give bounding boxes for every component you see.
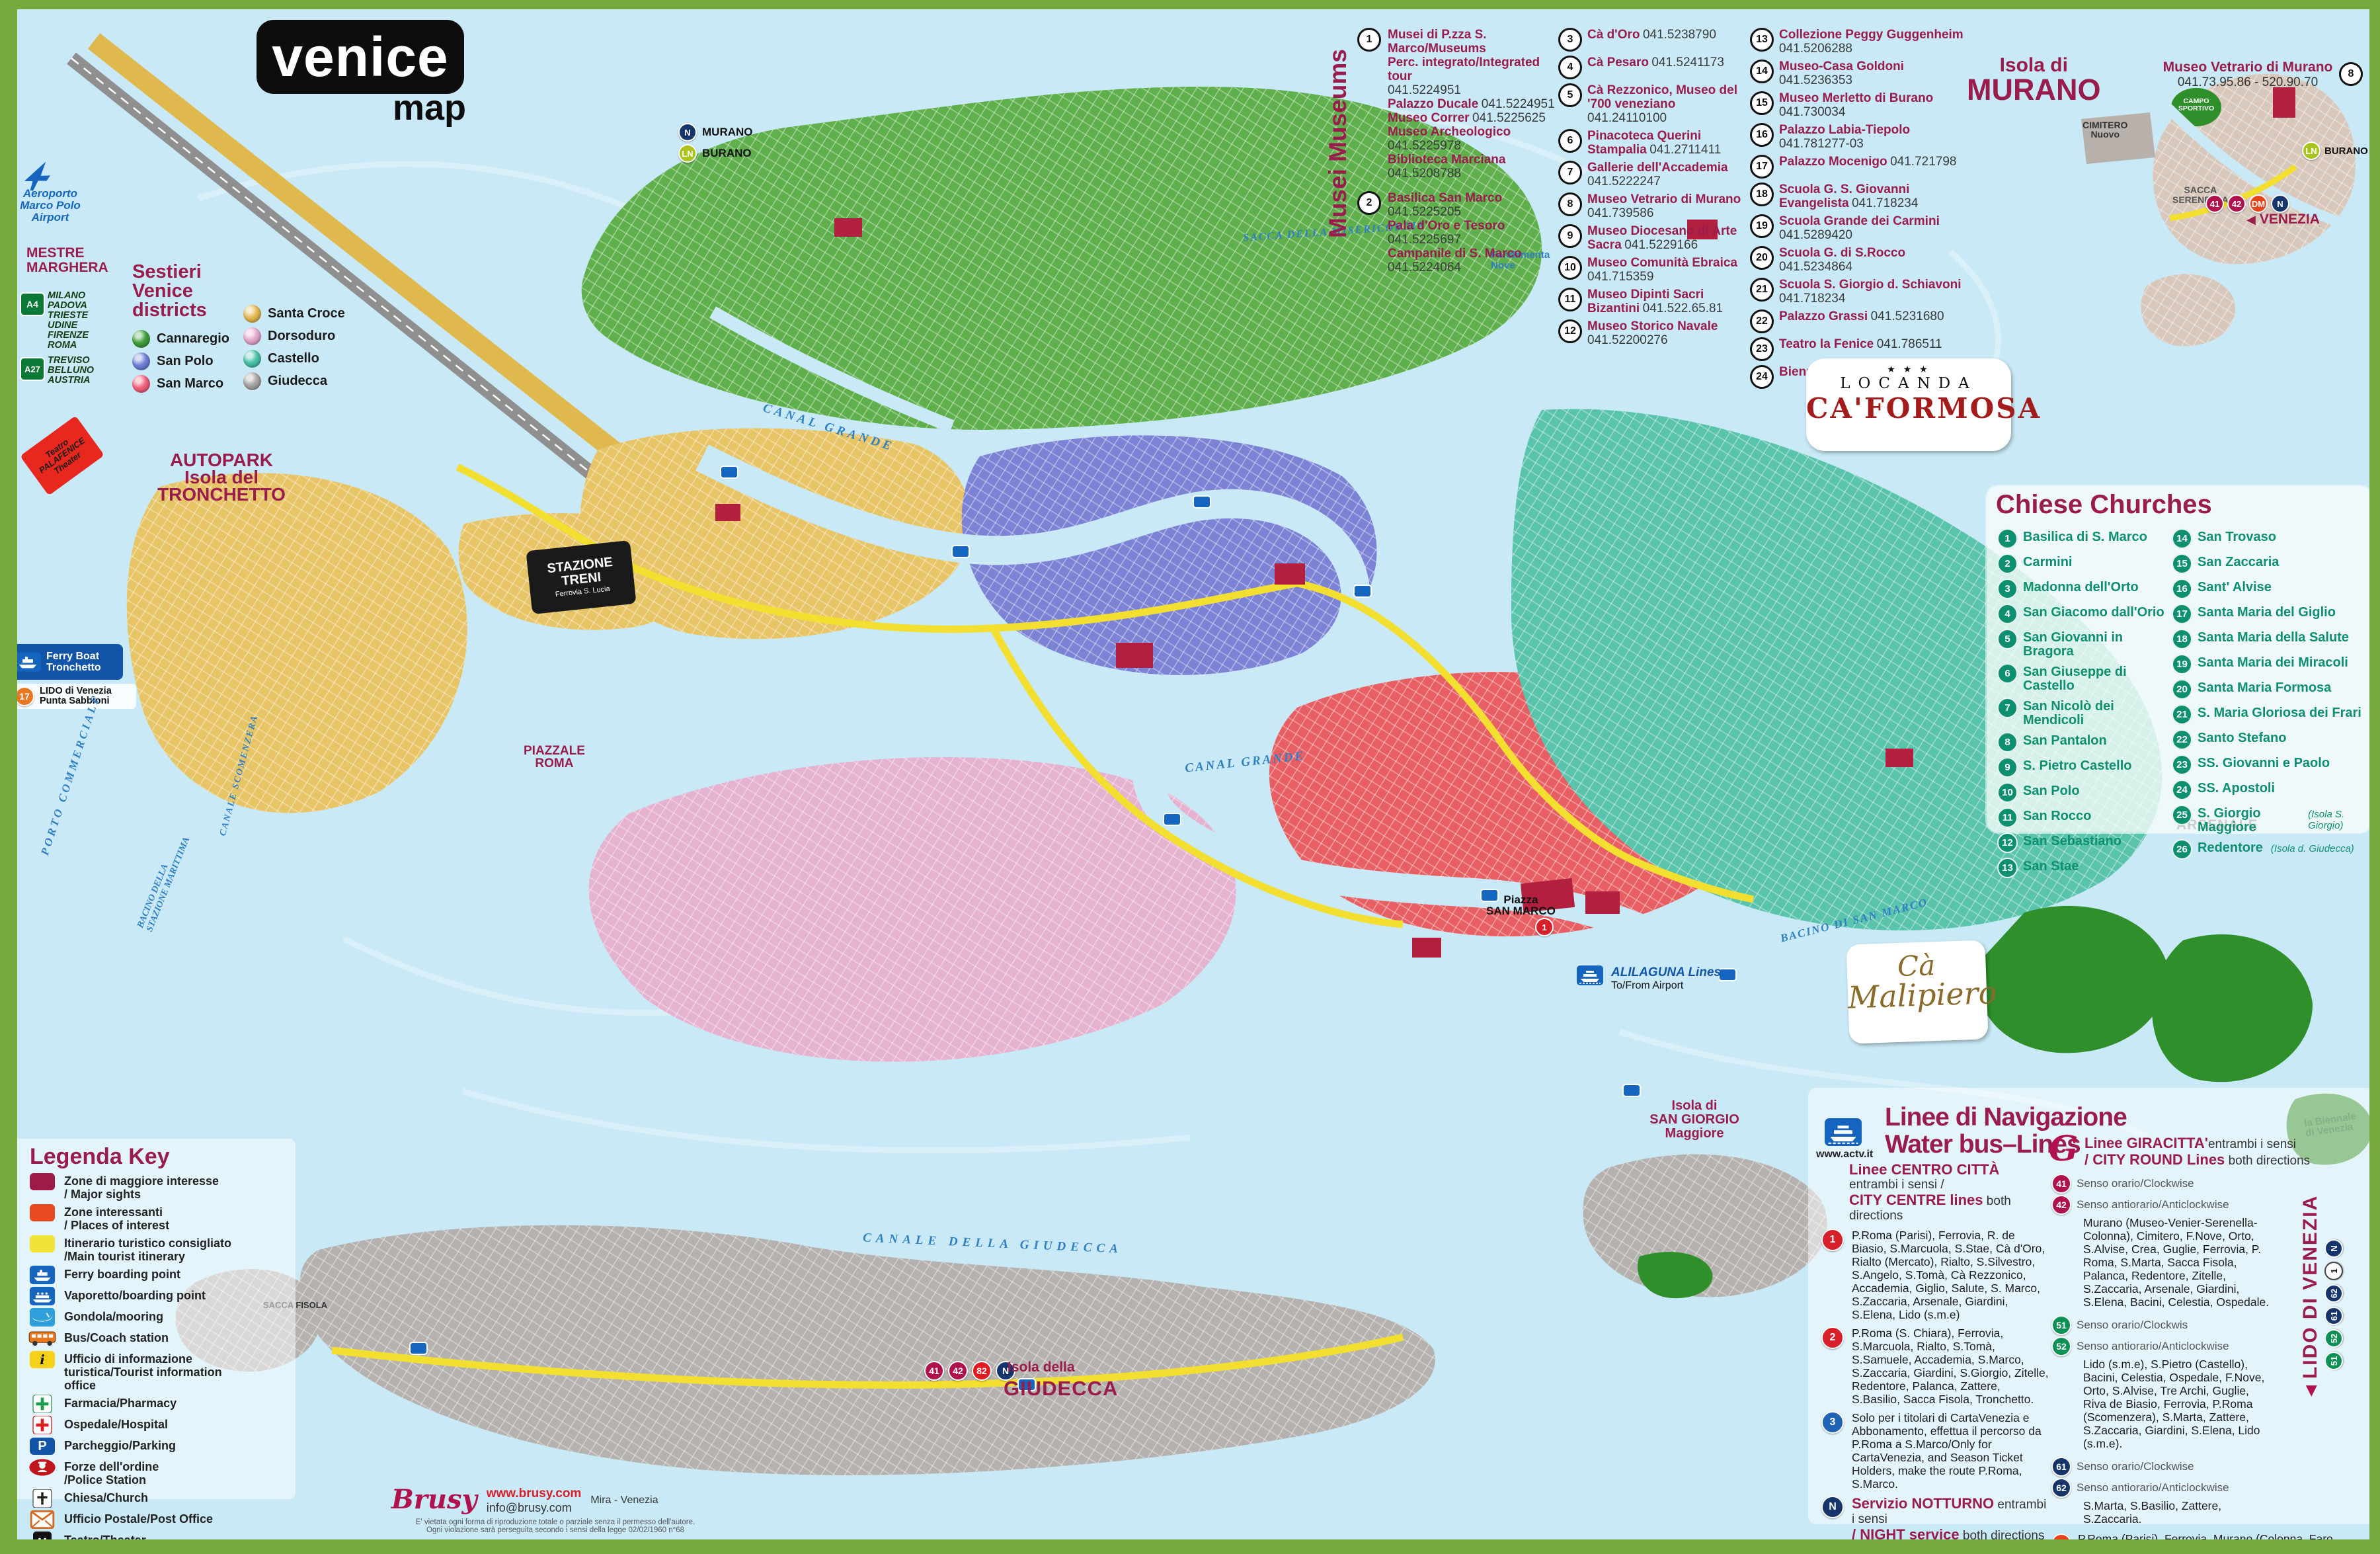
murano-museum-phone: 041.73.95.86 - 520.90.70 — [2162, 75, 2334, 90]
bus-line-entry: 2 P.Roma (S. Chiara), Ferrovia, S.Marcuo… — [1821, 1327, 2049, 1406]
district-color-dot — [132, 330, 150, 348]
map-border-bottom — [0, 1539, 2380, 1554]
museum-number-badge: 11 — [1558, 288, 1582, 311]
museum-item: 9 Museo Diocesano di Arte Sacra 041.5229… — [1558, 224, 1749, 252]
museum-phone: 041.5225697 — [1388, 233, 1461, 247]
museum-item: 22 Palazzo Grassi 041.5231680 — [1750, 309, 1975, 333]
museum-item: 5 Cà Rezzonico, Museo del '700 veneziano… — [1558, 83, 1749, 125]
church-number-badge: 7 — [1997, 698, 2018, 718]
district-color-dot — [132, 375, 150, 393]
city-centre-heading: Linee CENTRO CITTÀ entrambi i sensi / CI… — [1849, 1162, 2049, 1223]
church-item: 22 Santo Stefano — [2172, 729, 2369, 750]
museum-phone: 041.522.65.81 — [1643, 302, 1724, 315]
legend-item-label: Ufficio Postale/Post Office — [64, 1510, 213, 1526]
museum-number-badge: 16 — [1750, 123, 1774, 147]
museum-item: 8 Museo Vetrario di Murano 041.739586 — [1558, 192, 1749, 220]
museum-phone: 041.718234 — [1852, 196, 1918, 210]
legend-item: Vaporetto/boarding point — [28, 1287, 296, 1305]
ferry-boat-label: Ferry Boat Tronchetto — [46, 651, 101, 673]
church-item: 2 Carmini — [1997, 553, 2168, 574]
museum-item: 19 Scuola Grande dei Carmini 041.5289420 — [1750, 214, 1975, 242]
line-ln-badge: LN — [678, 144, 697, 163]
district-legend-item: Giudecca — [243, 372, 345, 390]
museum-name: Museo-Casa Goldoni — [1779, 60, 1904, 73]
district-color-dot — [243, 305, 261, 323]
legend-item: Zone di maggiore interesse / Major sight… — [28, 1172, 296, 1201]
credits-website: www.brusy.com — [487, 1487, 582, 1501]
brusy-logo: Brusy — [391, 1487, 477, 1513]
line-badge: 41 — [2205, 194, 2224, 213]
stazione-treni-sign: STAZIONE TRENI Ferrovia S. Lucia — [526, 540, 636, 614]
legal-line-2: Ogni violazione sarà perseguita secondo … — [370, 1526, 740, 1534]
legend-item-label: Ferry boarding point — [64, 1266, 180, 1281]
museum-name: Cà Pesaro — [1587, 56, 1649, 69]
district-legend-item: Dorsoduro — [243, 327, 345, 345]
pharmacy-icon — [28, 1395, 56, 1413]
murano-direction-label: MURANO — [702, 126, 753, 139]
museum-item: 20 Scuola G. di S.Rocco 041.5234864 — [1750, 246, 1975, 274]
museum-number-badge: 20 — [1750, 246, 1774, 270]
direction-label: Senso antiorario/Anticlockwise — [2077, 1340, 2229, 1353]
museum-name: Museo Vetrario di Murano — [1587, 192, 1741, 206]
legend-item: i Ufficio di informazione turistica/Tour… — [28, 1350, 296, 1392]
map-border-left — [0, 0, 17, 1554]
museum-number-badge: 5 — [1558, 83, 1582, 107]
heading-strong: Linee GIRACITTA' — [2084, 1135, 2208, 1151]
museum-item: 13 Collezione Peggy Guggenheim 041.52062… — [1750, 28, 1975, 56]
logo-text: venice — [272, 25, 449, 89]
church-name: S. Maria Gloriosa dei Frari — [2198, 704, 2361, 720]
legend-item: Bus/Coach station — [28, 1329, 296, 1348]
church-name: SS. Apostoli — [2198, 780, 2275, 796]
line-1-marker-badge: 1 — [1535, 918, 1554, 936]
museum-name: Museo Storico Navale — [1587, 319, 1718, 333]
church-name: San Sebastiano — [2023, 833, 2122, 848]
church-number-badge: 13 — [1997, 858, 2018, 878]
churches-panel: Chiese Churches 1 Basilica di S. Marco 2… — [1987, 486, 2371, 833]
church-number-badge: 12 — [1997, 833, 2018, 853]
church-note: (Isola d. Giudecca) — [2271, 839, 2354, 854]
museum-item: 17 Palazzo Mocenigo 041.721798 — [1750, 155, 1975, 179]
museum-phone: 041.739586 — [1587, 206, 1653, 220]
line-badge: 2 — [1821, 1327, 1844, 1349]
museum-phone: 041.5224064 — [1388, 261, 1461, 274]
museum-phone: 041.5224951 — [1482, 97, 1555, 111]
locanda-ca-formosa-ad: ★ ★ ★ LOCANDA CA'FORMOSA — [1806, 358, 2011, 451]
museum-item: 18 Scuola G. S. Giovanni Evangelista 041… — [1750, 183, 1975, 210]
church-name: S. Pietro Castello — [2023, 757, 2132, 773]
museum-name: Collezione Peggy Guggenheim — [1779, 28, 1963, 42]
arrow-left-icon: ◀ — [2246, 213, 2256, 227]
church-number-badge: 18 — [2172, 629, 2192, 649]
church-number-badge: 6 — [1997, 663, 2018, 684]
museum-name: Museo Archeologico — [1388, 125, 1511, 139]
museum-number-badge: 18 — [1750, 183, 1774, 206]
museum-item: 21 Scuola S. Giorgio d. Schiavoni 041.71… — [1750, 278, 1975, 306]
church-name: Santa Maria Formosa — [2198, 679, 2331, 695]
museum-phone: 041.5208788 — [1388, 167, 1461, 181]
church-number-badge: 21 — [2172, 704, 2192, 725]
heading-line: Linee GIRACITTA'entrambi i sensi — [2084, 1135, 2369, 1152]
cimitero-nuovo-label: CIMITERO Nuovo — [2082, 120, 2127, 139]
alilaguna-sublabel: To/From Airport — [1611, 980, 1721, 992]
direction-label: Senso orario/Clockwis — [2077, 1319, 2188, 1332]
church-item: 4 San Giacomo dall'Orio — [1997, 604, 2168, 624]
museum-name: Palazzo Ducale — [1388, 97, 1478, 111]
museum-phone: 041.5231680 — [1871, 309, 1944, 323]
heading-normal: both directions — [2225, 1154, 2310, 1168]
museum-phone: 041.5241173 — [1651, 56, 1724, 69]
line-badge: DM — [2249, 194, 2268, 213]
credits-legal: E' vietata ogni forma di riproduzione to… — [370, 1518, 740, 1534]
museum-name: Teatro la Fenice — [1779, 337, 1874, 351]
museum-number-badge: 7 — [1558, 161, 1582, 184]
church-name: Redentore — [2198, 839, 2263, 855]
district-legend-item: Cannaregio — [132, 330, 229, 348]
piazza-san-marco-label: Piazza SAN MARCO — [1486, 894, 1556, 917]
itinerary-icon — [28, 1235, 56, 1253]
malipiero-label-2: Malipiero — [1847, 977, 1987, 1013]
museum-name: Cà Rezzonico, Museo del '700 veneziano — [1587, 83, 1737, 111]
museum-name: Gallerie dell'Accademia — [1587, 161, 1728, 175]
campo-sportivo-label: CAMPO SPORTIVO — [2176, 98, 2217, 112]
church-item: 1 Basilica di S. Marco — [1997, 528, 2168, 549]
ferry-destination-sign: 17 LIDO di Venezia Punta Sabbioni — [11, 684, 136, 709]
mestre-label: MESTRE MARGHERA — [26, 246, 108, 275]
airport-label: Aeroporto Marco Polo Airport — [4, 188, 97, 224]
church-number-badge: 24 — [2172, 780, 2192, 800]
museum-item: 6 Pinacoteca Querini Stampalia 041.27114… — [1558, 129, 1749, 157]
heading-line: / CITY ROUND Lines both directions — [2084, 1152, 2369, 1168]
church-name: SS. Giovanni e Paolo — [2198, 755, 2330, 770]
museum-number-badge: 9 — [1558, 224, 1582, 248]
museum-phone: 041.5289420 — [1779, 228, 1852, 242]
line-ln-badge: LN — [2302, 142, 2320, 160]
heading-normal: entrambi i sensi — [2208, 1137, 2296, 1151]
parking-icon: P — [28, 1437, 56, 1455]
church-name: San Giuseppe di Castello — [2023, 663, 2168, 693]
credits-city: Mira - Venezia — [590, 1487, 658, 1506]
church-number-badge: 19 — [2172, 654, 2192, 675]
museum-phone: 041.781277-03 — [1779, 137, 1864, 151]
museum-phone: 041.5229166 — [1624, 238, 1698, 252]
church-item: 14 San Trovaso — [2172, 528, 2369, 549]
murano-museum-name: Museo Vetrario di Murano — [2162, 60, 2334, 75]
venezia-direction: ◀ VENEZIA — [2246, 212, 2320, 227]
legal-line-1: E' vietata ogni forma di riproduzione to… — [370, 1518, 740, 1526]
church-item: 12 San Sebastiano — [1997, 833, 2168, 853]
church-number-badge: 9 — [1997, 757, 2018, 778]
line-stops-text: Solo per i titolari di CartaVenezia e Ab… — [1852, 1411, 2049, 1491]
church-name: San Pantalon — [2023, 732, 2107, 748]
heading-line: CITY CENTRE lines both directions — [1849, 1192, 2049, 1223]
city-centre-lines-section: Linee CENTRO CITTÀ entrambi i sensi / CI… — [1821, 1162, 2049, 1554]
church-item: 10 San Polo — [1997, 782, 2168, 803]
district-color-dot — [243, 350, 261, 368]
ferry-boat-sign: Ferry Boat Tronchetto — [11, 644, 123, 680]
legend-title: Legenda Key — [30, 1144, 296, 1170]
church-item: 3 Madonna dell'Orto — [1997, 579, 2168, 599]
museum-phone: 041.730034 — [1779, 105, 1845, 119]
line-badge: 41 — [2051, 1174, 2071, 1194]
church-item: 19 Santa Maria dei Miracoli — [2172, 654, 2369, 675]
line-badge: 61 — [2051, 1457, 2071, 1477]
legend-item-label: Farmacia/Pharmacy — [64, 1395, 177, 1410]
museum-number-badge: 21 — [1750, 278, 1774, 302]
museum-row: Basilica San Marco 041.5225205 — [1388, 191, 1557, 219]
heading-line: Servizio NOTTURNO entrambi i sensi — [1852, 1496, 2049, 1527]
church-item: 16 Sant' Alvise — [2172, 579, 2369, 599]
museum-name: Cà d'Oro — [1587, 28, 1640, 42]
legend-item: Chiesa/Church — [28, 1489, 296, 1508]
logo-subtext: map — [393, 87, 466, 128]
line-stops-text: P.Roma (Parisi), Ferrovia, R. de Biasio,… — [1852, 1229, 2049, 1321]
line-n-badge: N — [678, 123, 697, 142]
line-direction-row: 61 Senso orario/Clockwise — [2051, 1457, 2369, 1477]
venezia-label: VENEZIA — [2260, 212, 2320, 227]
piazzale-roma-label: PIAZZALE ROMA — [524, 745, 585, 770]
museum-phone: 041.786511 — [1877, 337, 1942, 351]
church-number-badge: 23 — [2172, 755, 2192, 775]
bus-icon — [28, 1329, 56, 1348]
line-badge: 61 — [2324, 1307, 2343, 1325]
burano-direction-label: BURANO — [702, 147, 752, 160]
district-legend-item: Castello — [243, 350, 345, 368]
locanda-label: LOCANDA — [1806, 375, 2011, 392]
zone-interest-icon — [28, 1204, 56, 1222]
museum-number-badge: 19 — [1750, 214, 1774, 238]
legend-item-label: Zone di maggiore interesse / Major sight… — [64, 1172, 219, 1201]
legend-item-label: Parcheggio/Parking — [64, 1437, 176, 1452]
line-stops-text: Lido (s.m.e), S.Pietro (Castello), Bacin… — [2083, 1358, 2275, 1450]
line-badge: 1 — [1821, 1229, 1844, 1251]
night-service-heading: N Servizio NOTTURNO entrambi i sensi / N… — [1821, 1496, 2049, 1543]
night-line-badge: N — [1821, 1496, 1844, 1518]
church-number-badge: 14 — [2172, 528, 2192, 549]
line-badge: N — [2324, 1239, 2343, 1258]
museum-phone: 041.721798 — [1890, 155, 1956, 169]
museum-group-1: 1 Musei di P.zza S. Marco/Museums Perc. … — [1357, 28, 1557, 181]
church-name: Santa Maria dei Miracoli — [2198, 654, 2348, 670]
museum-number-badge: 2 — [1357, 191, 1381, 215]
church-name: San Polo — [2023, 782, 2080, 798]
san-giorgio-label: Isola di SAN GIORGIO Maggiore — [1645, 1099, 1744, 1141]
museum-phone: 041.5222247 — [1587, 175, 1661, 188]
line-stops-text: S.Marta, S.Basilio, Zattere, S.Zaccaria. — [2083, 1499, 2275, 1526]
church-item: 23 SS. Giovanni e Paolo — [2172, 755, 2369, 775]
church-name: San Zaccaria — [2198, 553, 2279, 569]
lido-line-badges: 515261621N — [2324, 1195, 2343, 1370]
museum-number-badge: 17 — [1750, 155, 1774, 179]
church-number-badge: 10 — [1997, 782, 2018, 803]
ca-malipiero-ad: Cà Malipiero — [1846, 940, 1988, 1043]
alilaguna-label: ALILAGUNA Lines — [1611, 965, 1721, 980]
legend-key-panel: Legenda Key Zone di maggiore interesse /… — [10, 1139, 296, 1499]
autopark-tronchetto-label: AUTOPARK Isola del TRONCHETTO — [132, 452, 311, 503]
church-item: 20 Santa Maria Formosa — [2172, 679, 2369, 700]
line-badge: 62 — [2324, 1284, 2343, 1303]
museum-phone: 041.52200276 — [1587, 333, 1668, 347]
museum-item: 11 Museo Dipinti Sacri Bizantini 041.522… — [1558, 288, 1749, 315]
legend-item-label: Zone interessanti / Places of interest — [64, 1204, 169, 1232]
line-direction-row: 62 Senso antiorario/Anticlockwise — [2051, 1478, 2369, 1498]
district-label: Giudecca — [268, 374, 327, 389]
museum-row: Campanile di S. Marco 041.5224064 — [1388, 247, 1557, 274]
burano-direction: LN BURANO — [678, 144, 752, 163]
museum-number-badge: 1 — [1357, 28, 1381, 52]
giudecca-label-line1: Isola della — [1008, 1360, 1075, 1375]
murano-direction: N MURANO — [678, 123, 753, 142]
line-badge: 42 — [2051, 1195, 2071, 1215]
heading-strong: CITY CENTRE lines — [1849, 1192, 1983, 1208]
museum-name: Museo Merletto di Burano — [1779, 91, 1933, 105]
direction-label: Senso orario/Clockwise — [2077, 1460, 2194, 1473]
credits-email: info@brusy.com — [487, 1501, 582, 1515]
museum-item: 15 Museo Merletto di Burano 041.730034 — [1750, 91, 1975, 119]
church-item: 15 San Zaccaria — [2172, 553, 2369, 574]
church-name: S. Giorgio Maggiore — [2198, 805, 2300, 835]
hospital-icon — [28, 1416, 56, 1434]
church-item: 6 San Giuseppe di Castello — [1997, 663, 2168, 693]
legend-item-label: Bus/Coach station — [64, 1329, 169, 1344]
museum-number-badge: 6 — [1558, 129, 1582, 153]
district-label: San Polo — [157, 354, 214, 369]
map-border-top — [0, 0, 2380, 9]
line-badge: 1 — [2324, 1262, 2343, 1280]
credits: Brusy www.brusy.com info@brusy.com Mira … — [391, 1487, 658, 1515]
line-stops-text: P.Roma (S. Chiara), Ferrovia, S.Marcuola… — [1852, 1327, 2049, 1406]
church-item: 25 S. Giorgio Maggiore (Isola S. Giorgio… — [2172, 805, 2369, 835]
a4-cities-label: MILANO PADOVA TRIESTE UDINE FIRENZE ROMA — [48, 291, 89, 350]
museum-number-badge: 14 — [1750, 60, 1774, 83]
museum-name: Biblioteca Marciana — [1388, 153, 1505, 167]
district-label: San Marco — [157, 376, 223, 391]
churches-title: Chiese Churches — [1996, 490, 2212, 520]
direction-label: Senso orario/Clockwise — [2077, 1177, 2194, 1190]
church-name: Sant' Alvise — [2198, 579, 2272, 594]
line-badge: 41 — [924, 1361, 944, 1381]
museum-name: Basilica San Marco — [1388, 191, 1502, 205]
stars-icon: ★ ★ ★ — [1806, 364, 2011, 375]
church-number-badge: 25 — [2172, 805, 2192, 825]
church-number-badge: 5 — [1997, 629, 2018, 649]
bus-line-entry: 3 Solo per i titolari di CartaVenezia e … — [1821, 1411, 2049, 1491]
legend-item: Ferry boarding point — [28, 1266, 296, 1284]
legend-item: Zone interessanti / Places of interest — [28, 1204, 296, 1232]
line-stops-text: Murano (Museo-Venier-Serenella-Colonna),… — [2083, 1216, 2275, 1309]
alilaguna-sign: ALILAGUNA Lines To/From Airport — [1577, 965, 1721, 992]
church-number-badge: 22 — [2172, 729, 2192, 750]
church-number-badge: 4 — [1997, 604, 2018, 624]
legend-item: Itinerario turistico consigliato /Main t… — [28, 1235, 296, 1263]
museum-number-badge: 22 — [1750, 309, 1774, 333]
giudecca-label-line2: GIUDECCA — [1004, 1377, 1118, 1401]
museum-name: Palazzo Labia-Tiepolo — [1779, 123, 1910, 137]
museum-row: Pala d'Oro e Tesoro 041.5225697 — [1388, 219, 1557, 247]
museum-name: Perc. integrato/Integrated tour — [1388, 56, 1557, 83]
church-name: San Rocco — [2023, 807, 2091, 823]
church-item: 13 San Stae — [1997, 858, 2168, 878]
district-label: Dorsoduro — [268, 329, 335, 344]
museum-item: 23 Teatro la Fenice 041.786511 — [1750, 337, 1975, 361]
line-direction-row: 41 Senso orario/Clockwise — [2051, 1174, 2369, 1194]
museum-name: Scuola Grande dei Carmini — [1779, 214, 1940, 228]
museum-name: Palazzo Mocenigo — [1779, 155, 1887, 169]
museum-number-badge: 23 — [1750, 337, 1774, 361]
lido-di-venezia-strip: ◀ LIDO DI VENEZIA 515261621N — [2299, 1195, 2343, 1397]
police-icon — [28, 1458, 56, 1477]
murano-inset-title: Isola di MURANO — [1967, 54, 2100, 103]
gondola-icon — [28, 1308, 56, 1327]
water-bus-lines-panel: www.actv.it Linee di Navigazione Water b… — [1808, 1088, 2374, 1524]
museum-item: 10 Museo Comunità Ebraica 041.715359 — [1558, 256, 1749, 284]
district-legend-item: San Polo — [132, 352, 229, 370]
church-item: 21 S. Maria Gloriosa dei Frari — [2172, 704, 2369, 725]
museum-item: 16 Palazzo Labia-Tiepolo 041.781277-03 — [1750, 123, 1975, 151]
museum-phone: 041.5225978 — [1388, 139, 1461, 153]
zone-major-icon — [28, 1172, 56, 1191]
church-name: San Stae — [2023, 858, 2079, 874]
line-badge: 52 — [2324, 1329, 2343, 1348]
museum-phone: 041.5224951 — [1388, 83, 1557, 97]
district-color-dot — [243, 327, 261, 345]
district-label: Santa Croce — [268, 306, 345, 321]
museums-panel: Musei Museums 1 Musei di P.zza S. Marco/… — [1319, 20, 2059, 380]
museum-item: 14 Museo-Casa Goldoni 041.5236353 — [1750, 60, 1975, 87]
church-name: Madonna dell'Orto — [2023, 579, 2139, 594]
museum-number-badge: 13 — [1750, 28, 1774, 52]
heading-strong: / CITY ROUND Lines — [2084, 1151, 2225, 1168]
church-name: Santo Stefano — [2198, 729, 2286, 745]
lido-strip-label: LIDO DI VENEZIA — [2299, 1195, 2322, 1379]
church-item: 7 San Nicolò dei Mendicoli — [1997, 698, 2168, 727]
heading-line: entrambi i sensi / — [1849, 1178, 2049, 1192]
church-icon — [28, 1489, 56, 1508]
district-legend-item: Santa Croce — [243, 305, 345, 323]
church-item: 11 San Rocco — [1997, 807, 2168, 828]
arrow-icon: ◀ — [2302, 1385, 2319, 1397]
museum-phone: 041.5206288 — [1779, 42, 1852, 56]
a4-highway-shield: A4 — [20, 292, 45, 316]
museum-phone: 041.2711411 — [1649, 143, 1721, 157]
ca-formosa-label: CA'FORMOSA — [1806, 392, 2011, 425]
legend-item: Ufficio Postale/Post Office — [28, 1510, 296, 1529]
museum-phone: 041.5225205 — [1388, 205, 1461, 219]
line-badge: 42 — [2227, 194, 2246, 213]
museum-number-badge: 4 — [1558, 56, 1582, 79]
church-number-badge: 16 — [2172, 579, 2192, 599]
church-item: 24 SS. Apostoli — [2172, 780, 2369, 800]
giracitta-glyph: G — [2049, 1129, 2078, 1169]
museum-name: Scuola G. di S.Rocco — [1779, 246, 1905, 260]
venice-map-logo: venice map — [257, 20, 481, 139]
church-number-badge: 1 — [1997, 528, 2018, 549]
legend-item-label: Vaporetto/boarding point — [64, 1287, 206, 1302]
church-name: Santa Maria del Giglio — [2198, 604, 2336, 620]
district-color-dot — [132, 352, 150, 370]
vaporetto-icon — [28, 1287, 56, 1305]
waterbus-title-line1: Linee di Navigazione — [1885, 1104, 2127, 1131]
museum-number-badge: 24 — [1750, 365, 1774, 389]
round-line-group: 61 Senso orario/Clockwise 62 Senso antio… — [2051, 1457, 2369, 1526]
museum-item: 3 Cà d'Oro 041.5238790 — [1558, 28, 1749, 52]
church-name: Santa Maria della Salute — [2198, 629, 2349, 645]
district-label: Castello — [268, 351, 319, 366]
church-item: 17 Santa Maria del Giglio — [2172, 604, 2369, 624]
a27-highway-shield: A27 — [20, 357, 45, 381]
museum-row: Biblioteca Marciana 041.5208788 — [1388, 153, 1557, 181]
murano-title-line2: MURANO — [1967, 77, 2100, 103]
